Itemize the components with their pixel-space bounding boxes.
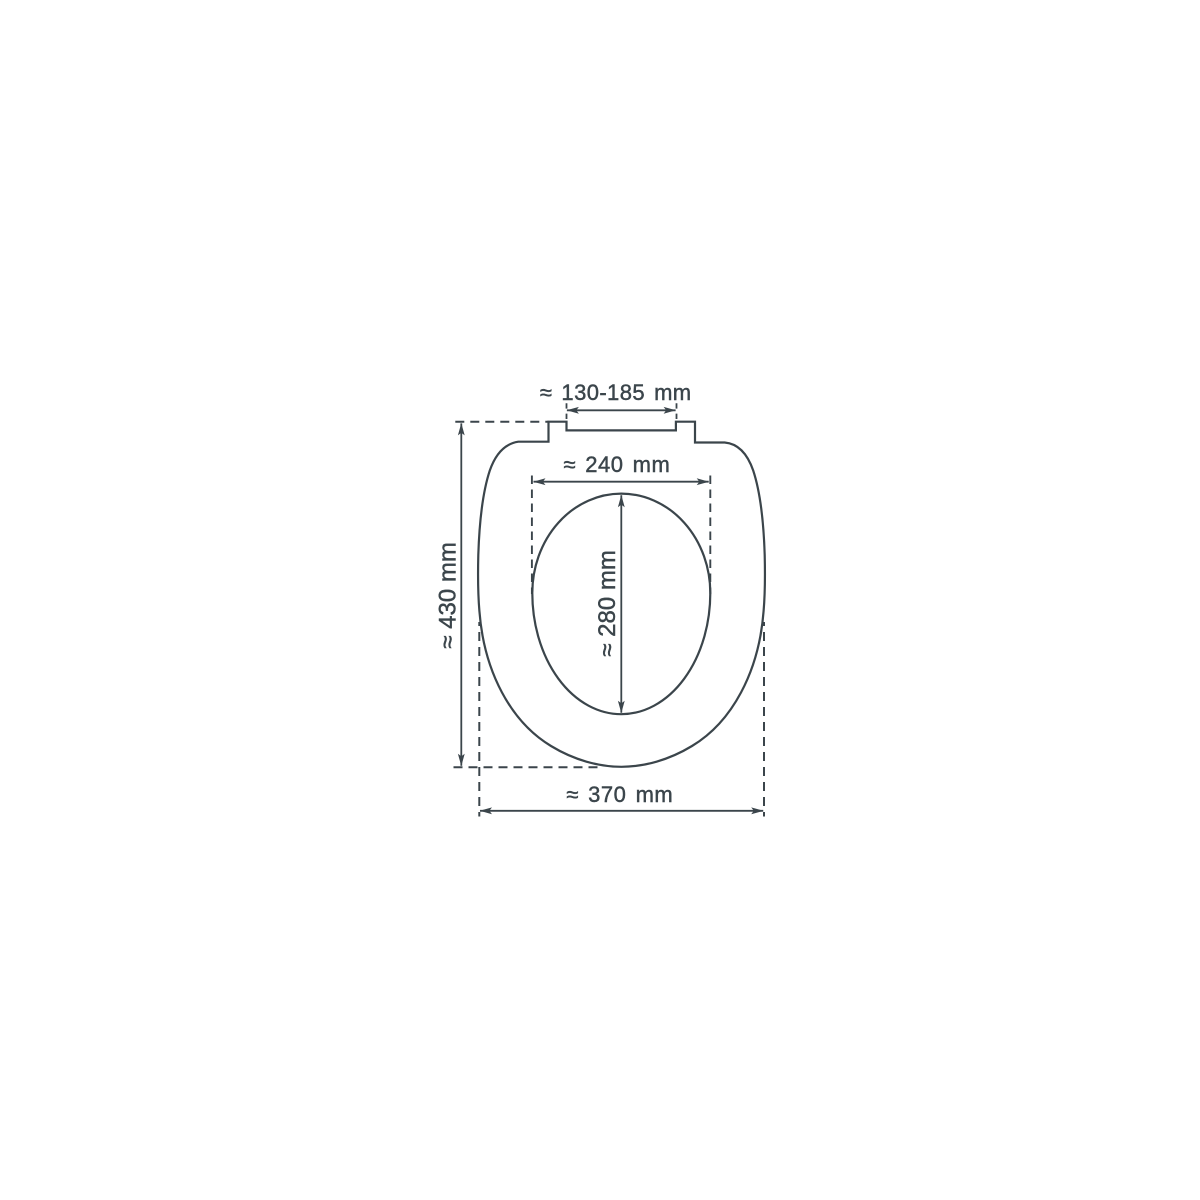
svg-text:≈ 240 mm: ≈ 240 mm xyxy=(563,452,670,477)
svg-text:≈ 130-185 mm: ≈ 130-185 mm xyxy=(540,380,692,405)
svg-text:≈ 280 mm: ≈ 280 mm xyxy=(594,550,621,657)
svg-text:≈ 430 mm: ≈ 430 mm xyxy=(434,542,461,649)
svg-text:≈ 370 mm: ≈ 370 mm xyxy=(566,782,673,807)
